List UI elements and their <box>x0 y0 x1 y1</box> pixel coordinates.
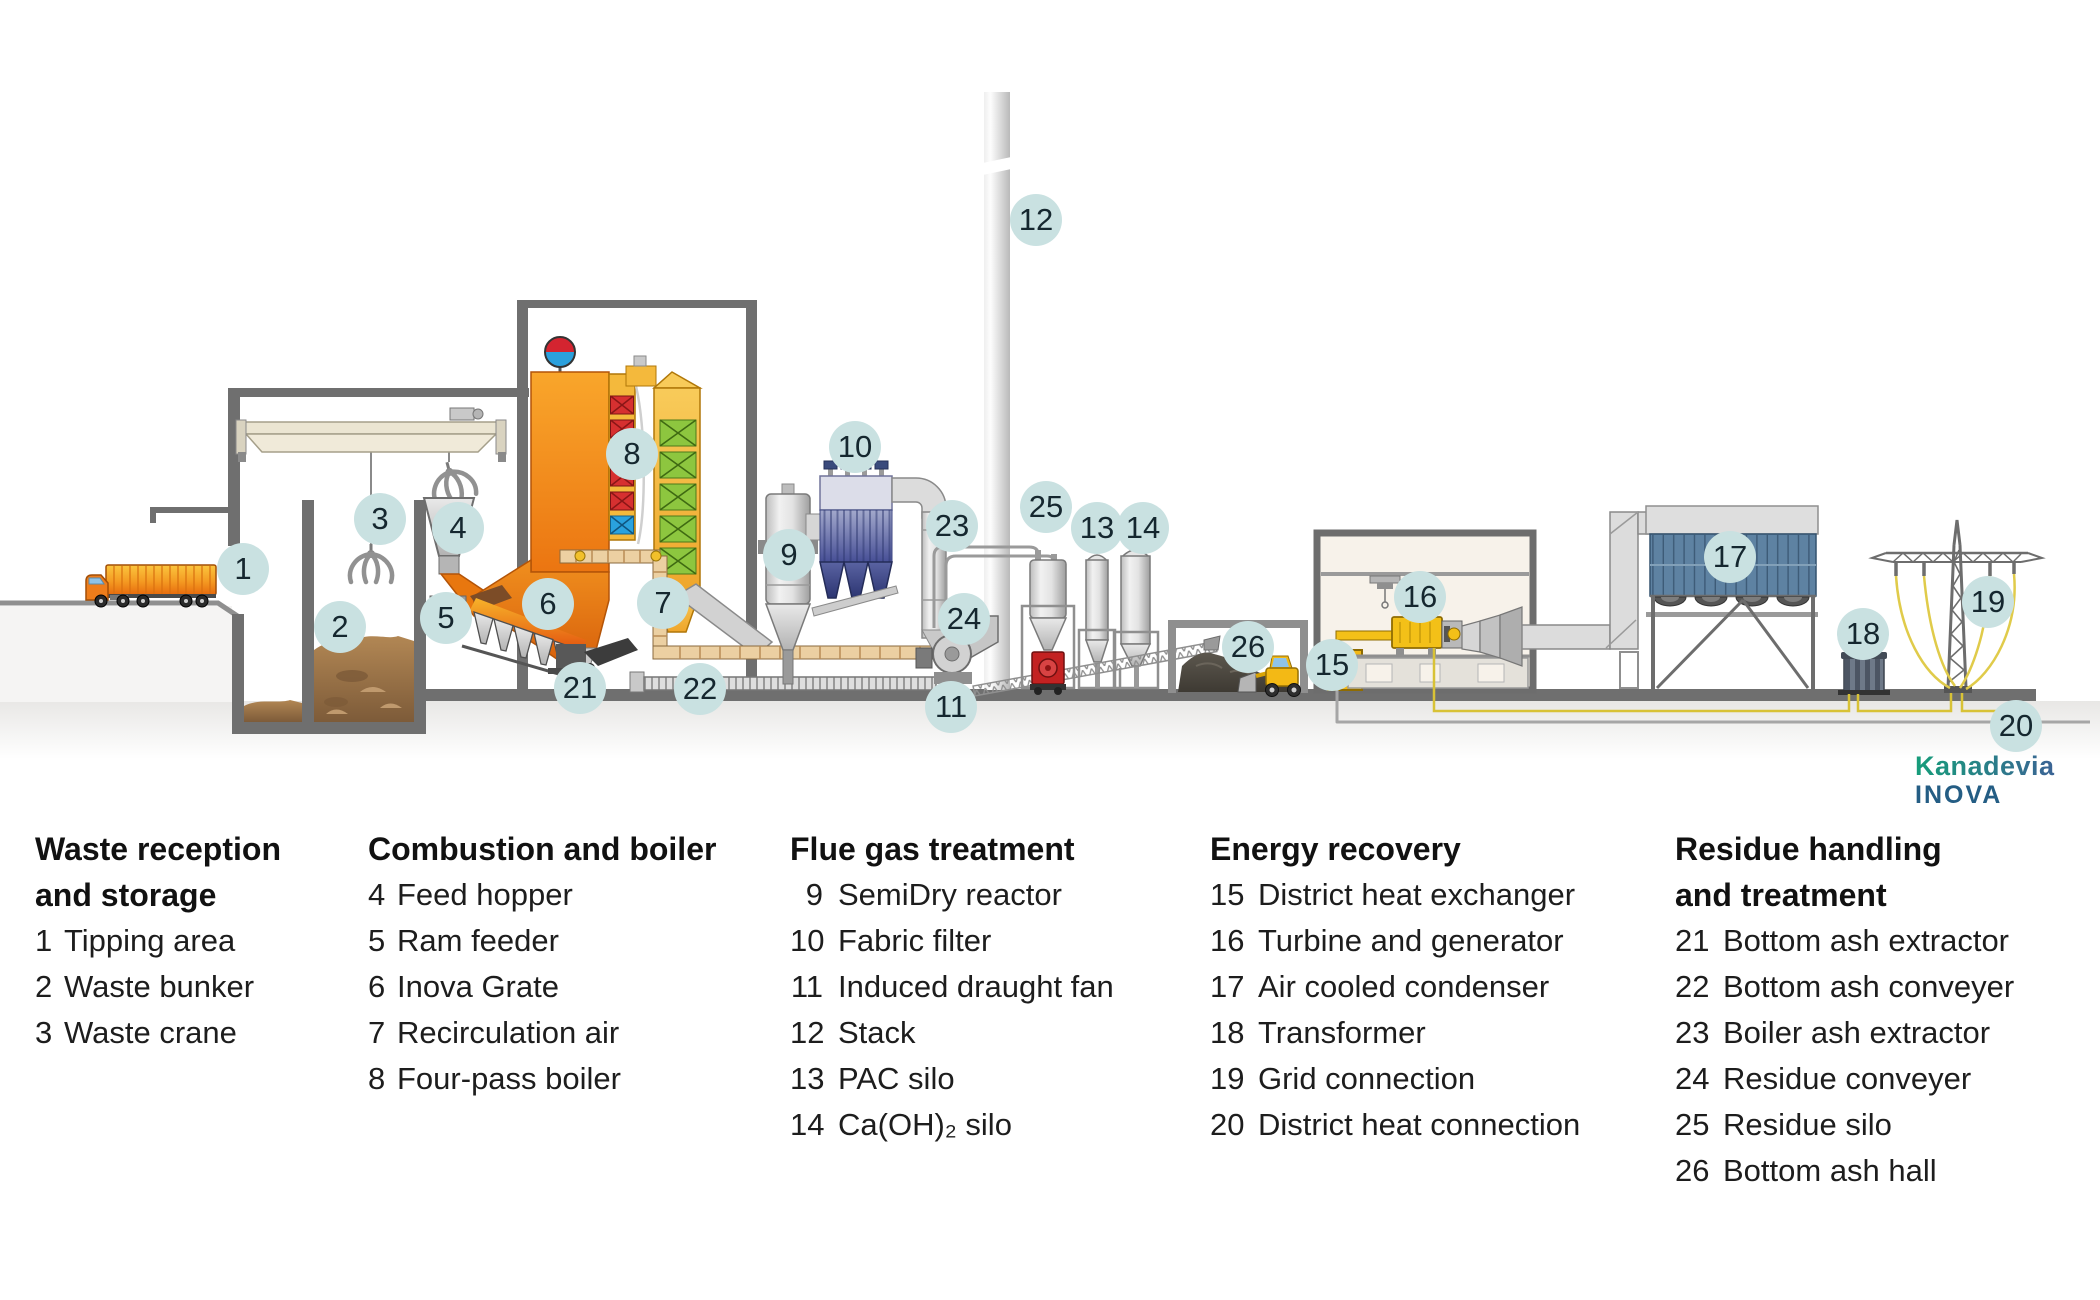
legend-item-number: 10 <box>790 918 823 964</box>
grid-pylon <box>1872 520 2042 693</box>
legend-item-label: Four-pass boiler <box>397 1056 621 1102</box>
legend-group-5: Residue handlingand treatment21Bottom as… <box>1675 826 2014 1194</box>
legend-item-label: Bottom ash conveyer <box>1723 964 2014 1010</box>
badge-14: 14 <box>1117 502 1169 554</box>
legend: Waste receptionand storage1Tipping area2… <box>0 826 2100 1226</box>
badge-12: 12 <box>1010 194 1062 246</box>
badge-6: 6 <box>522 578 574 630</box>
waste-to-energy-plant-diagram: 1234567891011121314151617181920212223242… <box>0 0 2100 1300</box>
legend-item-number: 20 <box>1210 1102 1243 1148</box>
four-pass-boiler <box>470 337 772 664</box>
legend-item-label: Fabric filter <box>838 918 991 964</box>
legend-item-15: 15District heat exchanger <box>1210 872 1580 918</box>
legend-item-number: 5 <box>368 918 397 964</box>
legend-item-16: 16Turbine and generator <box>1210 918 1580 964</box>
legend-item-number: 9 <box>790 872 823 918</box>
legend-group-2: Combustion and boiler4Feed hopper5Ram fe… <box>368 826 716 1102</box>
legend-group-title: Energy recovery <box>1210 826 1580 872</box>
legend-item-10: 10Fabric filter <box>790 918 1114 964</box>
legend-item-number: 16 <box>1210 918 1243 964</box>
legend-group-title: and treatment <box>1675 872 2014 918</box>
legend-group-3: Flue gas treatment9SemiDry reactor10Fabr… <box>790 826 1114 1148</box>
legend-item-23: 23Boiler ash extractor <box>1675 1010 2014 1056</box>
badge-23: 23 <box>926 500 978 552</box>
legend-item-label: District heat exchanger <box>1258 872 1575 918</box>
legend-item-label: Residue conveyer <box>1723 1056 1971 1102</box>
legend-item-11: 11Induced draught fan <box>790 964 1114 1010</box>
legend-item-9: 9SemiDry reactor <box>790 872 1114 918</box>
legend-item-5: 5Ram feeder <box>368 918 716 964</box>
legend-item-number: 15 <box>1210 872 1243 918</box>
legend-item-label: Ca(OH)₂ silo <box>838 1102 1012 1148</box>
badge-8: 8 <box>606 428 658 480</box>
legend-group-title: Combustion and boiler <box>368 826 716 872</box>
badge-19: 19 <box>1962 576 2014 628</box>
badge-25: 25 <box>1020 481 1072 533</box>
badge-5: 5 <box>420 592 472 644</box>
legend-item-24: 24Residue conveyer <box>1675 1056 2014 1102</box>
legend-item-label: Stack <box>838 1010 916 1056</box>
legend-item-label: Bottom ash extractor <box>1723 918 2009 964</box>
legend-item-label: Transformer <box>1258 1010 1426 1056</box>
legend-item-number: 23 <box>1675 1010 1708 1056</box>
legend-item-number: 19 <box>1210 1056 1243 1102</box>
legend-item-label: Waste bunker <box>64 964 254 1010</box>
legend-item-22: 22Bottom ash conveyer <box>1675 964 2014 1010</box>
legend-item-8: 8Four-pass boiler <box>368 1056 716 1102</box>
legend-item-number: 7 <box>368 1010 397 1056</box>
legend-item-number: 24 <box>1675 1056 1708 1102</box>
badge-15: 15 <box>1306 639 1358 691</box>
legend-item-13: 13PAC silo <box>790 1056 1114 1102</box>
legend-item-18: 18Transformer <box>1210 1010 1580 1056</box>
badge-22: 22 <box>674 663 726 715</box>
legend-item-label: Boiler ash extractor <box>1723 1010 1990 1056</box>
legend-item-12: 12Stack <box>790 1010 1114 1056</box>
legend-item-label: PAC silo <box>838 1056 955 1102</box>
badge-26: 26 <box>1222 621 1274 673</box>
legend-item-2: 2Waste bunker <box>35 964 281 1010</box>
legend-item-label: Ram feeder <box>397 918 559 964</box>
badge-13: 13 <box>1071 502 1123 554</box>
legend-item-20: 20District heat connection <box>1210 1102 1580 1148</box>
badge-3: 3 <box>354 493 406 545</box>
badge-9: 9 <box>763 529 815 581</box>
legend-item-25: 25Residue silo <box>1675 1102 2014 1148</box>
legend-item-number: 12 <box>790 1010 823 1056</box>
legend-item-label: Grid connection <box>1258 1056 1475 1102</box>
legend-item-label: Turbine and generator <box>1258 918 1564 964</box>
legend-group-title: Residue handling <box>1675 826 2014 872</box>
legend-group-title: Flue gas treatment <box>790 826 1114 872</box>
badge-2: 2 <box>314 601 366 653</box>
legend-item-number: 17 <box>1210 964 1243 1010</box>
legend-item-19: 19Grid connection <box>1210 1056 1580 1102</box>
badge-18: 18 <box>1837 608 1889 660</box>
logo-line1: Kanadevia <box>1915 753 2055 780</box>
legend-item-7: 7Recirculation air <box>368 1010 716 1056</box>
legend-item-number: 1 <box>35 918 64 964</box>
legend-group-title: Waste reception <box>35 826 281 872</box>
legend-item-number: 4 <box>368 872 397 918</box>
legend-item-label: Tipping area <box>64 918 235 964</box>
legend-item-3: 3Waste crane <box>35 1010 281 1056</box>
badge-11: 11 <box>925 681 977 733</box>
badge-16: 16 <box>1394 571 1446 623</box>
legend-item-number: 11 <box>790 964 823 1010</box>
legend-item-label: Induced draught fan <box>838 964 1114 1010</box>
fabric-filter <box>806 461 946 638</box>
legend-group-title: and storage <box>35 872 281 918</box>
legend-item-6: 6Inova Grate <box>368 964 716 1010</box>
legend-item-number: 6 <box>368 964 397 1010</box>
legend-item-number: 2 <box>35 964 64 1010</box>
company-logo: Kanadevia INOVA <box>1915 753 2055 808</box>
badge-24: 24 <box>938 593 990 645</box>
silo-discharger <box>1030 652 1066 695</box>
legend-item-label: District heat connection <box>1258 1102 1580 1148</box>
legend-item-label: Recirculation air <box>397 1010 619 1056</box>
legend-item-number: 3 <box>35 1010 64 1056</box>
badge-17: 17 <box>1704 531 1756 583</box>
legend-item-number: 22 <box>1675 964 1708 1010</box>
legend-group-4: Energy recovery15District heat exchanger… <box>1210 826 1580 1148</box>
legend-item-26: 26Bottom ash hall <box>1675 1148 2014 1194</box>
legend-item-label: Feed hopper <box>397 872 573 918</box>
legend-item-label: Waste crane <box>64 1010 237 1056</box>
legend-item-label: Inova Grate <box>397 964 559 1010</box>
legend-item-number: 14 <box>790 1102 823 1148</box>
logo-line2: INOVA <box>1915 783 2055 808</box>
legend-item-number: 25 <box>1675 1102 1708 1148</box>
legend-group-1: Waste receptionand storage1Tipping area2… <box>35 826 281 1056</box>
legend-item-label: Bottom ash hall <box>1723 1148 1937 1194</box>
badge-10: 10 <box>829 421 881 473</box>
legend-item-17: 17Air cooled condenser <box>1210 964 1580 1010</box>
legend-item-14: 14Ca(OH)₂ silo <box>790 1102 1114 1148</box>
legend-item-number: 18 <box>1210 1010 1243 1056</box>
badge-1: 1 <box>217 543 269 595</box>
badge-7: 7 <box>637 577 689 629</box>
legend-item-1: 1Tipping area <box>35 918 281 964</box>
badge-4: 4 <box>432 502 484 554</box>
stack <box>978 92 1016 690</box>
legend-item-number: 8 <box>368 1056 397 1102</box>
legend-item-number: 26 <box>1675 1148 1708 1194</box>
legend-item-label: SemiDry reactor <box>838 872 1062 918</box>
legend-item-label: Air cooled condenser <box>1258 964 1549 1010</box>
legend-item-number: 21 <box>1675 918 1708 964</box>
legend-item-number: 13 <box>790 1056 823 1102</box>
legend-item-label: Residue silo <box>1723 1102 1892 1148</box>
legend-item-4: 4Feed hopper <box>368 872 716 918</box>
badge-21: 21 <box>554 662 606 714</box>
legend-item-21: 21Bottom ash extractor <box>1675 918 2014 964</box>
badge-20: 20 <box>1990 700 2042 752</box>
